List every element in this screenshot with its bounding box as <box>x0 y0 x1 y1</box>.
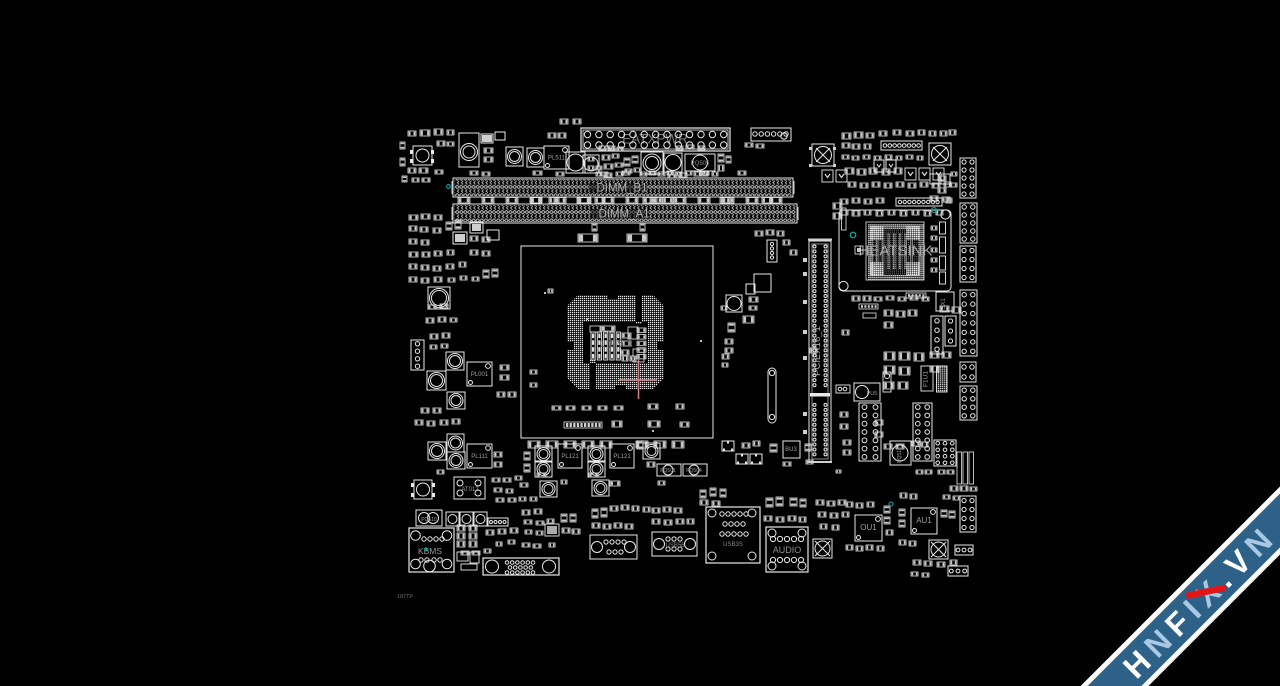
svg-text:PL111: PL111 <box>471 454 488 460</box>
svg-text:AT012: AT012 <box>461 487 479 493</box>
svg-text:PQ501: PQ501 <box>660 468 676 474</box>
svg-text:PQ504: PQ504 <box>686 468 702 474</box>
svg-text:PL001: PL001 <box>471 372 489 378</box>
svg-text:USB3S: USB3S <box>723 542 743 548</box>
svg-text:AUDIO: AUDIO <box>773 545 802 555</box>
svg-text:PQ510: PQ510 <box>421 517 437 523</box>
svg-text:EATXPWR: EATXPWR <box>622 132 688 147</box>
svg-text:1 1 5 1: 1 1 5 1 <box>599 338 633 350</box>
svg-text:PL511: PL511 <box>548 156 566 162</box>
svg-text:PQ513: PQ513 <box>897 447 903 463</box>
svg-text:AU1: AU1 <box>916 516 932 525</box>
svg-text:HEATSINK: HEATSINK <box>859 243 933 260</box>
svg-text:F1U1: F1U1 <box>923 371 930 387</box>
svg-text:PL121: PL121 <box>613 454 631 460</box>
svg-text:PCIEX16_1: PCIEX16_1 <box>812 326 823 376</box>
svg-text:DIMM_A1: DIMM_A1 <box>598 209 649 221</box>
svg-text:DIMM_B1: DIMM_B1 <box>596 183 647 195</box>
svg-text:PL121: PL121 <box>561 454 579 460</box>
svg-text:OU1: OU1 <box>860 523 877 532</box>
svg-text:BU3: BU3 <box>785 447 797 453</box>
svg-text:187TP: 187TP <box>397 594 414 600</box>
svg-text:USB56: USB56 <box>665 543 685 549</box>
svg-text:PQ505: PQ505 <box>691 161 710 167</box>
svg-text:PU5: PU5 <box>867 391 878 397</box>
svg-text:KBMS: KBMS <box>418 546 442 556</box>
